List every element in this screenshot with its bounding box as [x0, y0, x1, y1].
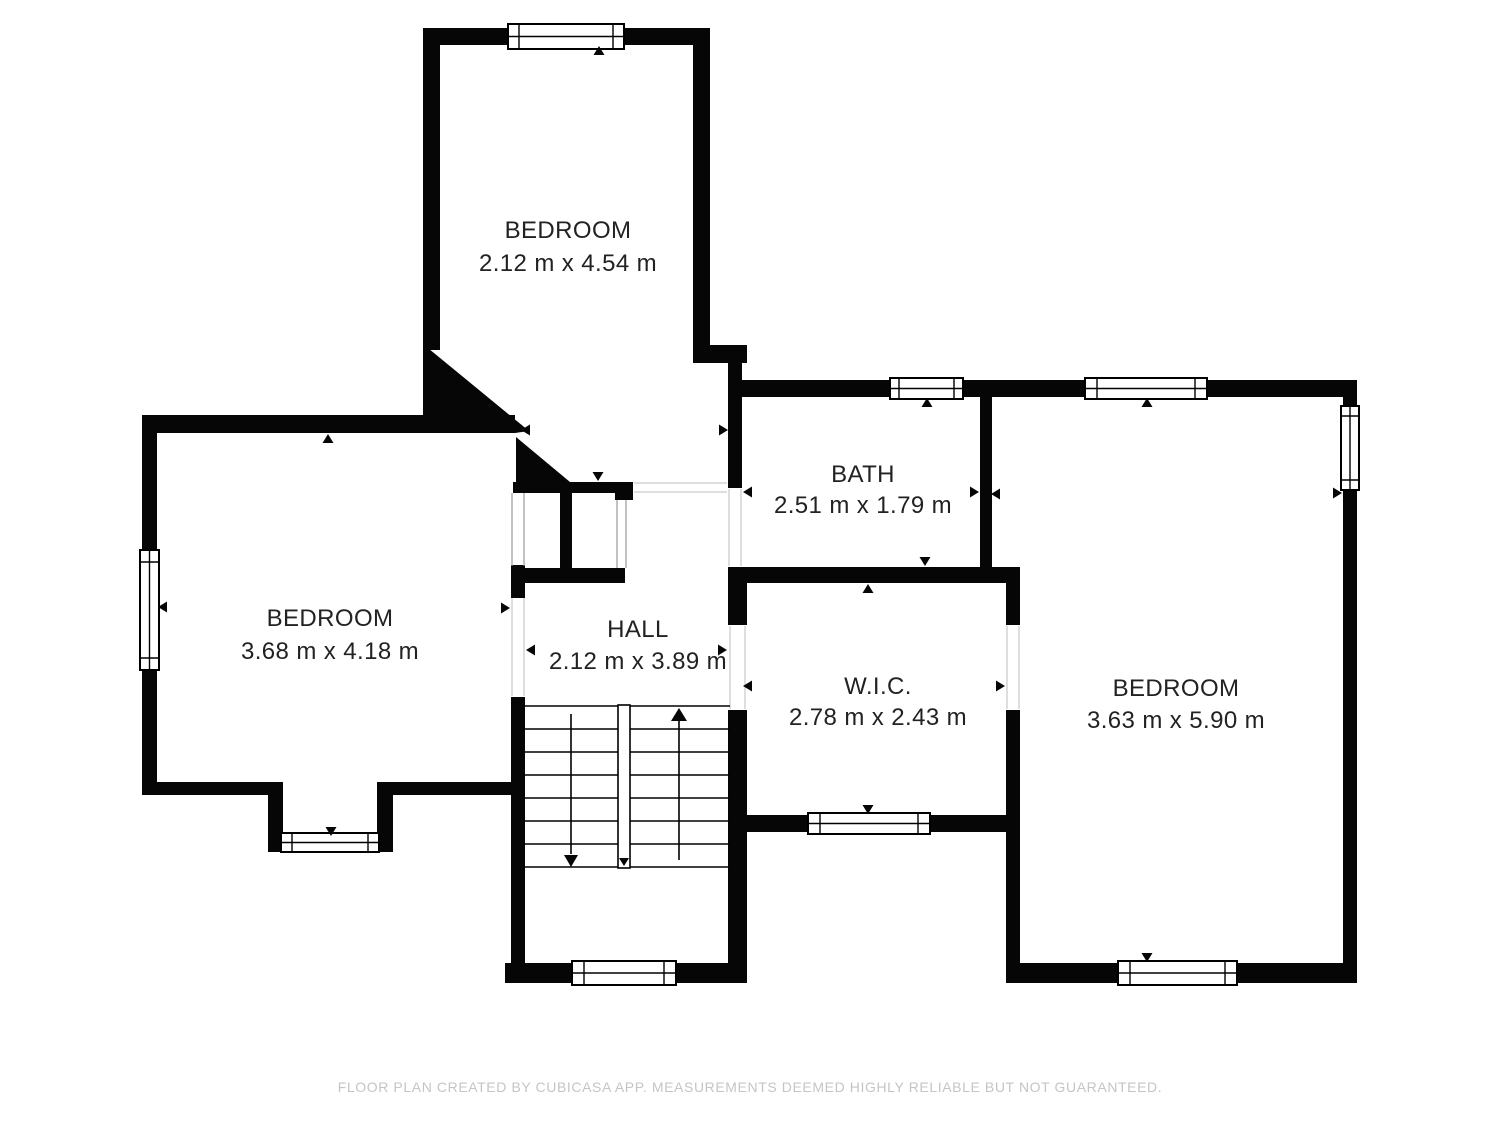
- wall: [742, 380, 1357, 397]
- window-right-bedroom-south: [1118, 961, 1237, 985]
- room-label: BEDROOM: [505, 217, 632, 244]
- wall: [1006, 583, 1020, 625]
- room-dimensions: 2.78 m x 2.43 m: [789, 704, 967, 731]
- arrow-left: [991, 489, 1000, 500]
- staircase: [525, 705, 730, 868]
- room-label: BEDROOM: [267, 605, 394, 632]
- arrow-down: [920, 557, 931, 566]
- wall-diagonal: [516, 437, 570, 482]
- arrow-down: [593, 472, 604, 481]
- window-right-bedroom-east: [1341, 406, 1359, 490]
- arrow-right: [970, 487, 979, 498]
- room-wic: W.I.C. 2.78 m x 2.43 m: [789, 673, 967, 731]
- room-hall: HALL 2.12 m x 3.89 m: [549, 616, 727, 675]
- arrow-right: [501, 603, 510, 614]
- wall: [142, 782, 283, 795]
- wall: [693, 28, 710, 350]
- arrow-right: [996, 681, 1005, 692]
- floor-plan-page: BEDROOM 2.12 m x 4.54 m BEDROOM 3.68 m x…: [0, 0, 1500, 1125]
- wall: [142, 415, 515, 433]
- wall: [615, 482, 633, 500]
- arrow-left: [526, 645, 535, 656]
- wall: [728, 363, 742, 488]
- wall: [393, 782, 511, 795]
- arrow-up: [323, 434, 334, 443]
- window-right-bedroom-north: [1085, 378, 1207, 399]
- wall: [728, 710, 747, 983]
- stair-down-arrow: [564, 855, 578, 867]
- room-dimensions: 2.12 m x 4.54 m: [479, 250, 657, 277]
- arrow-left: [743, 487, 752, 498]
- arrow-left: [743, 681, 752, 692]
- wall: [980, 393, 992, 570]
- room-dimensions: 3.68 m x 4.18 m: [241, 638, 419, 665]
- arrow-right: [719, 425, 728, 436]
- window-left-bedroom-west: [140, 550, 159, 670]
- wall: [693, 345, 747, 363]
- wall: [423, 28, 440, 350]
- arrow-up: [863, 584, 874, 593]
- wall: [728, 567, 1020, 583]
- room-bedroom-left: BEDROOM 3.68 m x 4.18 m: [241, 605, 419, 665]
- window-bath-north: [890, 378, 963, 399]
- floor-plan-canvas: BEDROOM 2.12 m x 4.54 m BEDROOM 3.68 m x…: [0, 0, 1500, 1125]
- stair-up-arrow: [671, 708, 687, 721]
- room-labels: BEDROOM 2.12 m x 4.54 m BEDROOM 3.68 m x…: [241, 217, 1265, 734]
- windows: [140, 24, 1359, 985]
- wall: [511, 697, 525, 983]
- room-dimensions: 3.63 m x 5.90 m: [1087, 707, 1265, 734]
- wall: [513, 568, 625, 583]
- room-label: BEDROOM: [1113, 675, 1240, 702]
- window-top-bedroom: [508, 24, 624, 49]
- window-stair-hall-south: [572, 961, 676, 985]
- stair-divider: [618, 705, 630, 868]
- room-dimensions: 2.51 m x 1.79 m: [774, 492, 952, 519]
- room-label: BATH: [831, 461, 895, 488]
- wall: [511, 565, 525, 598]
- window-wic-south: [808, 813, 930, 834]
- room-dimensions: 2.12 m x 3.89 m: [549, 648, 727, 675]
- wall: [560, 493, 572, 573]
- footer-disclaimer: FLOOR PLAN CREATED BY CUBICASA APP. MEAS…: [338, 1079, 1163, 1095]
- room-bedroom-top: BEDROOM 2.12 m x 4.54 m: [479, 217, 657, 277]
- room-label: W.I.C.: [844, 673, 912, 700]
- room-bath: BATH 2.51 m x 1.79 m: [774, 461, 952, 519]
- room-bedroom-right: BEDROOM 3.63 m x 5.90 m: [1087, 675, 1265, 734]
- window-left-bedroom-bay: [281, 833, 379, 852]
- wall: [1006, 710, 1020, 983]
- room-label: HALL: [607, 616, 669, 643]
